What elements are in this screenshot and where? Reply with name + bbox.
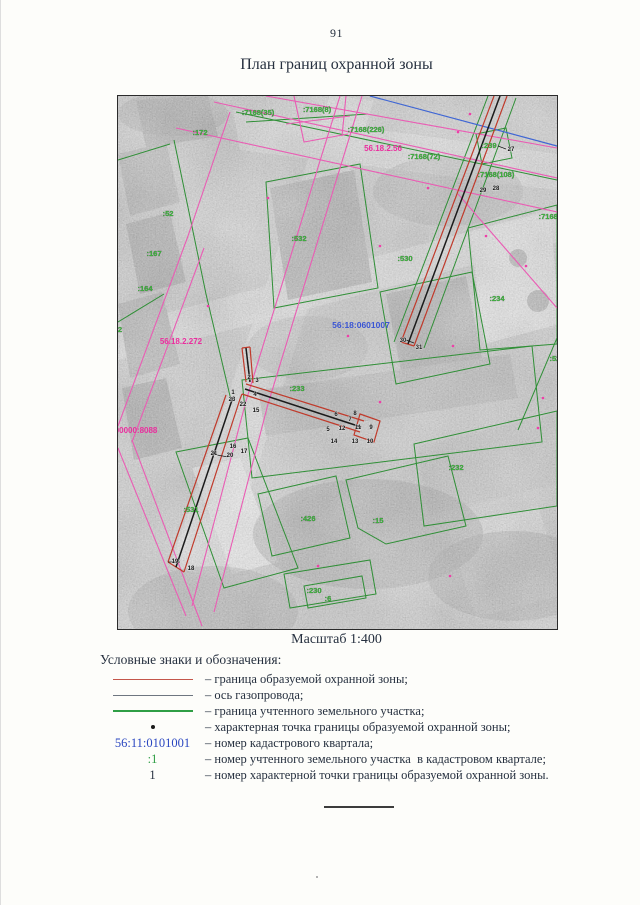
legend-label: – номер учтенного земельного участка в к… (205, 752, 546, 767)
parcel-label: :7168(108) (478, 170, 515, 179)
point-label: 19 (172, 559, 179, 565)
parcel-boundary-line-symbol (113, 710, 193, 712)
parcel-label: :530 (397, 254, 412, 263)
point-label: 14 (331, 439, 338, 445)
point-label: 29 (480, 188, 487, 194)
legend-label: – номер характерной точки границы образу… (205, 768, 549, 783)
quarter-number-label: 56:18:0601007 (332, 320, 390, 330)
legend-label: – граница учтенного земельного участка; (205, 704, 424, 719)
point-label: 21 (211, 451, 218, 457)
parcel-label: :7168(8) (303, 105, 332, 114)
pipeline-axis-line-symbol (113, 695, 193, 696)
parcel-label: :234 (489, 294, 505, 303)
point-label: 22 (240, 402, 247, 408)
legend-row: :1 – номер учтенного земельного участка … (100, 751, 570, 767)
parcel-label: :426 (300, 514, 315, 523)
legend-heading: Условные знаки и обозначения: (100, 652, 570, 668)
footer-rule (324, 806, 394, 808)
legend-label: – номер кадастрового квартала; (205, 736, 373, 751)
point-label: 11 (355, 425, 362, 431)
point-label: 27 (508, 147, 515, 153)
point-label: 16 (230, 444, 237, 450)
point-label: 17 (241, 449, 248, 455)
scan-dot-artifact (316, 876, 318, 878)
characteristic-point-dot-symbol (151, 725, 155, 729)
point-label: 12 (339, 426, 346, 432)
parcel-label: :7168(35) (242, 108, 275, 117)
parcel-label: 2 (118, 325, 122, 334)
point-label: 13 (352, 439, 359, 445)
parcel-label: :6 (325, 594, 332, 603)
parcel-label: :164 (137, 284, 153, 293)
legend-label: – характерная точка границы образуемой о… (205, 720, 510, 735)
parcel-label: :52 (163, 209, 174, 218)
map-scale-caption: Масштаб 1:400 (117, 632, 556, 648)
parcel-label: :239 (481, 141, 496, 150)
parcel-label: :531 (183, 505, 198, 514)
point-label: 10 (367, 439, 374, 445)
point-label: 30 (400, 338, 407, 344)
parcel-label: :172 (192, 128, 207, 137)
point-label: 28 (493, 186, 500, 192)
parcel-label: :233 (289, 384, 304, 393)
scan-edge-artifact (0, 0, 1, 905)
parcel-label: :15 (373, 516, 384, 525)
parcel-label: :7168(72) (408, 152, 441, 161)
legend-row: 1 – номер характерной точки границы обра… (100, 767, 570, 783)
point-label: 15 (253, 408, 260, 414)
parcel-number-symbol: :1 (148, 752, 158, 767)
parcel-label: :167 (146, 249, 161, 258)
point-label: 23 (229, 397, 236, 403)
parcel-label: :532 (291, 234, 306, 243)
legend-row: 56:11:0101001 – номер кадастрового кварт… (100, 735, 570, 751)
legend-label: – граница образуемой охранной зоны; (205, 672, 408, 687)
map-canvas: :7168(35) :7168(8) :172 :7168(226) :7168… (118, 96, 557, 629)
parcel-label: :7168(226) (348, 125, 385, 134)
document-page: 91 План границ охранной зоны (0, 0, 640, 905)
parcel-label: :230 (306, 586, 321, 595)
point-label: 31 (416, 345, 423, 351)
parcel-label: :528 (549, 354, 557, 363)
zone-label: 56:18:0000000:8088 (118, 426, 158, 435)
point-label: 18 (188, 566, 195, 572)
legend-row: – ось газопровода; (100, 687, 570, 703)
point-label: 20 (227, 453, 234, 459)
quarter-number-symbol: 56:11:0101001 (115, 736, 190, 751)
parcel-label: :232 (448, 463, 463, 472)
legend-label: – ось газопровода; (205, 688, 303, 703)
page-title: План границ охранной зоны (117, 56, 556, 74)
legend-row: – характерная точка границы образуемой о… (100, 719, 570, 735)
point-number-symbol: 1 (149, 768, 155, 783)
legend-row: – граница образуемой охранной зоны; (100, 671, 570, 687)
zone-label: 56.18.2.272 (160, 337, 203, 346)
parcel-label: :7168(153) (539, 212, 557, 221)
legend: Условные знаки и обозначения: – граница … (100, 652, 570, 783)
cadastral-map: :7168(35) :7168(8) :172 :7168(226) :7168… (117, 95, 558, 630)
legend-row: – граница учтенного земельного участка; (100, 703, 570, 719)
page-number: 91 (117, 26, 556, 41)
zone-boundary-line-symbol (113, 679, 193, 680)
zone-label: 56.18.2.56 (364, 144, 402, 153)
